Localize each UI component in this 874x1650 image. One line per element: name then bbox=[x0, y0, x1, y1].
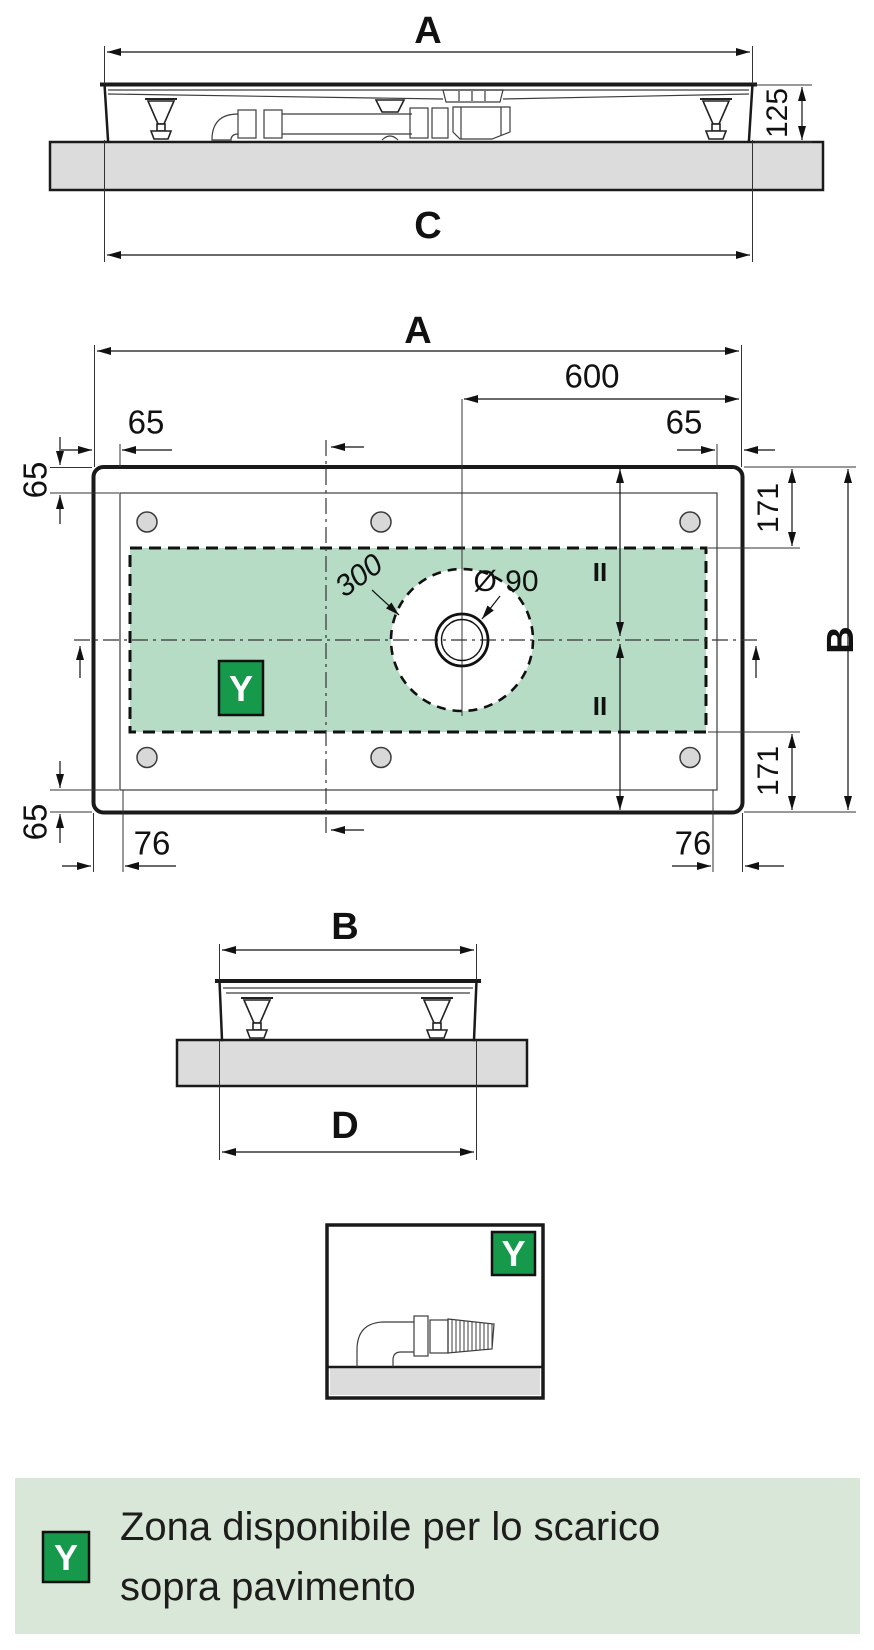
side-view-width: B D bbox=[177, 906, 527, 1160]
legend-line-1: Zona disponibile per lo scarico bbox=[120, 1505, 660, 1549]
dim-label-65: 65 bbox=[17, 462, 54, 499]
dim-a-plan: A bbox=[95, 310, 742, 467]
legend-badge-y: Y bbox=[43, 1532, 89, 1582]
support-foot bbox=[421, 998, 453, 1038]
dim-label-76: 76 bbox=[675, 825, 712, 862]
detail-box: Y bbox=[327, 1225, 543, 1398]
dim-label-171: 171 bbox=[752, 483, 785, 533]
tray-profile-width bbox=[217, 981, 479, 1040]
dim-label-d: D bbox=[331, 1105, 358, 1147]
dim-65-top-left: 65 bbox=[61, 404, 172, 467]
plan-view: A 600 65 65 65 bbox=[17, 310, 862, 872]
dim-b-side: B bbox=[220, 906, 477, 980]
zone-badge-y: Y bbox=[219, 661, 263, 715]
dim-label-dia90: Ø 90 bbox=[473, 565, 538, 598]
dim-label-125: 125 bbox=[761, 88, 794, 138]
detail-badge-y: Y bbox=[492, 1232, 535, 1275]
drain-pipe bbox=[212, 107, 510, 140]
side-view-length: A 125 C bbox=[50, 10, 823, 262]
dim-label-b-plan: B bbox=[820, 626, 862, 653]
support-foot bbox=[700, 99, 732, 139]
dim-125: 125 bbox=[755, 85, 812, 142]
dim-65-top-right: 65 bbox=[666, 404, 775, 467]
dim-label-b-side: B bbox=[331, 906, 358, 948]
dim-600: 600 bbox=[464, 358, 739, 399]
dim-label-600: 600 bbox=[564, 358, 619, 395]
dim-label-65: 65 bbox=[17, 804, 54, 841]
drain-cap bbox=[443, 90, 503, 102]
dim-label-171: 171 bbox=[752, 746, 785, 796]
dim-label-c: C bbox=[414, 205, 441, 247]
tray-profile-length bbox=[102, 84, 755, 140]
dim-label-a-side: A bbox=[414, 10, 441, 52]
support-foot bbox=[145, 99, 177, 139]
dim-label-65: 65 bbox=[128, 404, 165, 441]
floor-slab-2 bbox=[177, 1040, 527, 1086]
dim-label-76: 76 bbox=[134, 825, 171, 862]
legend: Y Zona disponibile per lo scarico sopra … bbox=[15, 1478, 860, 1634]
dim-a-side: A bbox=[105, 10, 753, 84]
zone-badge-letter: Y bbox=[229, 668, 253, 709]
legend-badge-letter: Y bbox=[54, 1537, 78, 1578]
floor-slab bbox=[50, 142, 823, 190]
detail-floor bbox=[330, 1368, 540, 1395]
dim-label-a-plan: A bbox=[404, 310, 431, 352]
equal-mark: II bbox=[593, 691, 607, 721]
legend-line-2: sopra pavimento bbox=[120, 1565, 416, 1609]
detail-badge-letter: Y bbox=[501, 1233, 525, 1274]
legend-panel bbox=[15, 1478, 860, 1634]
dim-label-65: 65 bbox=[666, 404, 703, 441]
support-foot bbox=[241, 998, 273, 1038]
equal-mark: II bbox=[593, 557, 607, 587]
technical-drawing-canvas: A 125 C bbox=[0, 0, 874, 1650]
support-foot-middle bbox=[376, 100, 404, 112]
